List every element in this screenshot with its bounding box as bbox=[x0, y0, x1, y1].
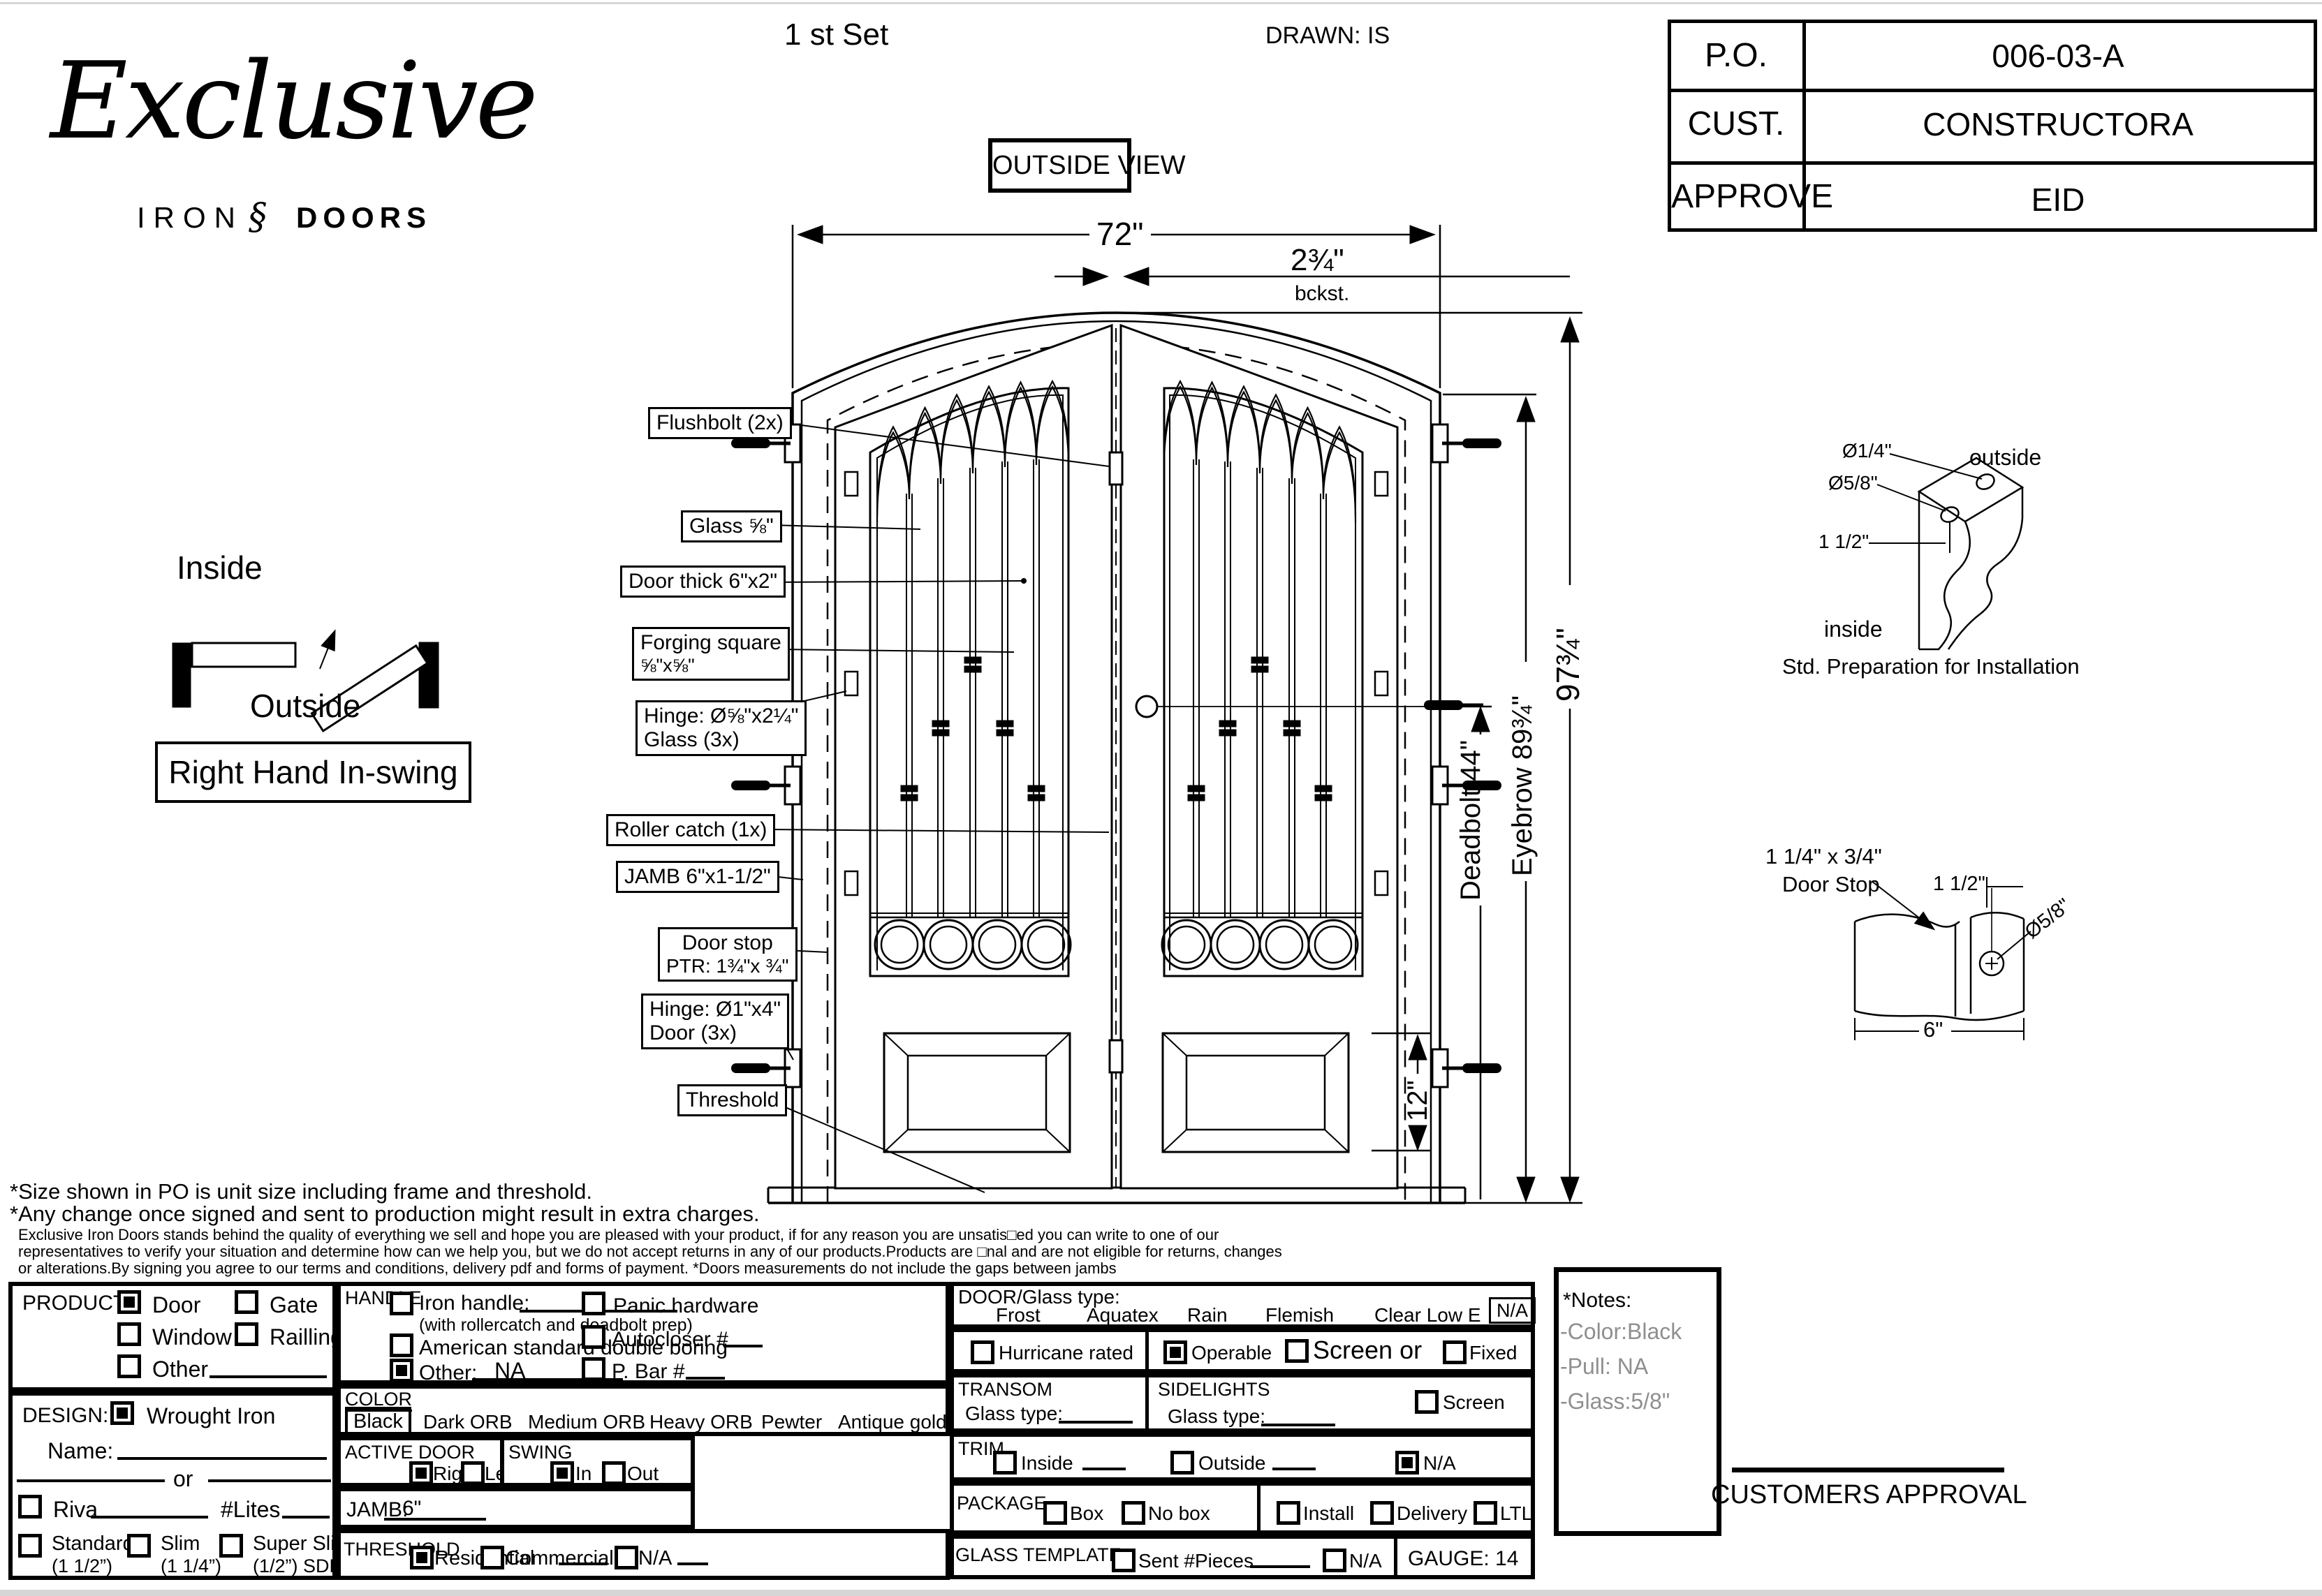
swing-title: SWING bbox=[508, 1442, 573, 1463]
doorstop-dim-bottom: 6" bbox=[1923, 1018, 1943, 1042]
checkbox-commercial[interactable] bbox=[480, 1546, 504, 1569]
screen-or-label: Screen or bbox=[1313, 1336, 1422, 1364]
section-trim: TRIM Inside Outside N/A bbox=[950, 1433, 1535, 1482]
glass-opt-frost[interactable]: Frost bbox=[996, 1304, 1041, 1326]
dim-width: 72" bbox=[1089, 216, 1151, 253]
disclaimer-line1: *Size shown in PO is unit size including… bbox=[10, 1180, 592, 1204]
design-name-field[interactable] bbox=[117, 1438, 327, 1460]
checkbox-fixed[interactable] bbox=[1443, 1340, 1467, 1364]
checkbox-left[interactable] bbox=[461, 1461, 485, 1485]
transom-glass-label: Glass type: bbox=[965, 1403, 1063, 1424]
section-jamb: JAMB: 6" bbox=[337, 1487, 695, 1529]
trim-outside-label: Outside bbox=[1198, 1452, 1266, 1474]
sent-pieces-label: Sent #Pieces bbox=[1138, 1550, 1254, 1572]
dim-height: 97¾" bbox=[1549, 628, 1587, 702]
notes-title: *Notes: bbox=[1563, 1289, 1631, 1313]
design-name-label: Name: bbox=[47, 1439, 113, 1464]
doorstop-diagram bbox=[1855, 877, 2031, 1040]
po-label: P.O. bbox=[1671, 37, 1801, 75]
section-operable: Hurricane rated Operable Screen or Fixed bbox=[950, 1328, 1535, 1373]
doorstop-title1: 1 1/4" x 3/4" bbox=[1765, 845, 1882, 869]
logo-iron: IRON bbox=[137, 201, 244, 234]
gauge-label: GAUGE: 14 bbox=[1408, 1547, 1518, 1571]
package-delivery-label: Delivery bbox=[1397, 1502, 1467, 1524]
dim-eyebrow: Eyebrow 89¾" bbox=[1507, 695, 1538, 876]
checkbox-out[interactable] bbox=[602, 1461, 626, 1485]
package-box-label: Box bbox=[1070, 1502, 1103, 1524]
dim-deadbolt: Deadbolt 44" bbox=[1455, 740, 1487, 901]
logo-ornament-icon: § bbox=[249, 197, 267, 237]
package-ltl-label: LTL bbox=[1500, 1502, 1532, 1524]
threshold-na-field[interactable] bbox=[677, 1546, 708, 1565]
checkbox-riva[interactable] bbox=[18, 1495, 42, 1519]
package-install-label: Install bbox=[1303, 1502, 1354, 1524]
checkbox-door[interactable] bbox=[117, 1290, 141, 1314]
swing-caption-box: Right Hand In-swing bbox=[155, 741, 471, 803]
section-glass-type: DOOR/Glass type: Frost Aquatex Rain Flem… bbox=[950, 1282, 1535, 1328]
product-window-label: Window bbox=[152, 1325, 232, 1350]
install-inside: inside bbox=[1824, 617, 1883, 642]
design-wrought-label: Wrought Iron bbox=[147, 1404, 275, 1429]
section-product: PRODUCT: Door Gate Window Railling Other bbox=[8, 1282, 337, 1391]
disclaimer-line3: Exclusive Iron Doors stands behind the q… bbox=[18, 1227, 1219, 1244]
cust-value: CONSTRUCTORA bbox=[1804, 107, 2312, 143]
trim-outside-field[interactable] bbox=[1272, 1451, 1316, 1470]
doorstop-dim-top: 1 1/2" bbox=[1933, 873, 1985, 895]
callout-door-thick: Door thick 6"x2" bbox=[620, 566, 786, 598]
trim-na-label: N/A bbox=[1423, 1452, 1456, 1474]
door-leaf-left bbox=[835, 325, 1112, 1188]
callout-forging: Forging square ⅝"x⅝" bbox=[632, 627, 790, 681]
package-title: PACKAGE bbox=[957, 1493, 1047, 1514]
checkbox-residential[interactable] bbox=[410, 1546, 434, 1569]
door-spec-sheet: Exclusive IRON § DOORS 1 st Set DRAWN: I… bbox=[0, 0, 2322, 1596]
callout-hinge-door: Hinge: Ø1"x4" Door (3x) bbox=[641, 993, 789, 1049]
logo-doors: DOORS bbox=[296, 201, 432, 234]
color-opt-antiquegold[interactable]: Antique gold bbox=[838, 1411, 947, 1433]
swing-inside-label: Inside bbox=[177, 550, 263, 586]
product-gate-label: Gate bbox=[270, 1293, 318, 1318]
approve-label: APPROVE bbox=[1671, 178, 1801, 216]
design-title: DESIGN: bbox=[22, 1404, 108, 1428]
handle-autocloser-label: Autocloser # bbox=[612, 1328, 728, 1352]
callout-door-stop: Door stop PTR: 1¾"x ¾" bbox=[658, 927, 798, 982]
glass-opt-aquatex[interactable]: Aquatex bbox=[1087, 1304, 1159, 1326]
checkbox-install[interactable] bbox=[1277, 1501, 1300, 1525]
callout-hinge-glass: Hinge: Ø⅝"x2¼" Glass (3x) bbox=[635, 700, 807, 756]
handle-autocloser-field[interactable] bbox=[723, 1327, 763, 1347]
checkbox-trim-na[interactable] bbox=[1395, 1451, 1419, 1475]
product-title: PRODUCT: bbox=[22, 1292, 129, 1315]
section-color: COLOR Black Dark ORB Medium ORB Heavy OR… bbox=[337, 1384, 950, 1436]
design-or-label: or bbox=[173, 1467, 193, 1492]
po-table: P.O. 006-03-A CUST. CONSTRUCTORA APPROVE… bbox=[1668, 20, 2317, 232]
section-glass-template: GLASS TEMPLATE Sent #Pieces N/A GAUGE: 1… bbox=[950, 1535, 1535, 1579]
checkbox-hurricane[interactable] bbox=[971, 1340, 994, 1364]
dim-panel: 12" bbox=[1402, 1080, 1434, 1121]
color-opt-heavyorb[interactable]: Heavy ORB bbox=[649, 1411, 753, 1433]
checkbox-railing[interactable] bbox=[235, 1322, 258, 1346]
package-nobox-label: No box bbox=[1148, 1502, 1210, 1524]
swing-out-label: Out bbox=[627, 1463, 659, 1484]
installation-diagram bbox=[1869, 454, 2022, 649]
logo-script: Exclusive bbox=[50, 42, 536, 161]
section-notes: *Notes: -Color:Black -Pull: NA -Glass:5/… bbox=[1554, 1267, 1721, 1536]
checkbox-handle-other[interactable] bbox=[390, 1359, 413, 1382]
hurricane-label: Hurricane rated bbox=[999, 1342, 1133, 1364]
product-door-label: Door bbox=[152, 1293, 200, 1318]
drawn-label: DRAWN: IS bbox=[1265, 22, 1390, 49]
checkbox-right[interactable] bbox=[409, 1461, 433, 1485]
notes-color: -Color:Black bbox=[1560, 1320, 1682, 1345]
color-opt-pewter[interactable]: Pewter bbox=[761, 1411, 822, 1433]
template-na-label: N/A bbox=[1349, 1550, 1382, 1572]
set-label: 1 st Set bbox=[784, 17, 888, 52]
checkbox-screen-or[interactable] bbox=[1285, 1339, 1309, 1363]
design-lites-label: #Lites bbox=[221, 1498, 280, 1523]
swing-caption: Right Hand In-swing bbox=[168, 754, 457, 790]
checkbox-trim-inside[interactable] bbox=[993, 1451, 1017, 1475]
callout-threshold: Threshold bbox=[677, 1084, 787, 1116]
product-railing-label: Railling bbox=[270, 1325, 343, 1350]
callout-jamb: JAMB 6"x1-1/2" bbox=[616, 861, 779, 893]
section-design: DESIGN: Wrought Iron Name: or Riva #Lite… bbox=[8, 1391, 337, 1580]
po-value: 006-03-A bbox=[1804, 38, 2312, 75]
section-handle: HANDLE Iron handle: (with rollercatch an… bbox=[337, 1282, 950, 1384]
design-riva-field[interactable] bbox=[91, 1496, 208, 1519]
install-dia2: Ø5/8" bbox=[1828, 472, 1878, 494]
checkbox-iron-handle[interactable] bbox=[390, 1292, 413, 1315]
glass-opt-clearlowe[interactable]: Clear Low E bbox=[1374, 1304, 1481, 1326]
callout-flushbolt: Flushbolt (2x) bbox=[648, 407, 792, 439]
transom-title: TRANSOM bbox=[958, 1379, 1052, 1400]
trim-inside-field[interactable] bbox=[1082, 1451, 1126, 1470]
sidelights-screen-label: Screen bbox=[1443, 1391, 1505, 1413]
color-selected[interactable]: Black bbox=[345, 1407, 411, 1436]
product-other-label: Other bbox=[152, 1357, 208, 1382]
callout-roller: Roller catch (1x) bbox=[606, 814, 775, 846]
approval-signature-line[interactable] bbox=[1732, 1468, 2004, 1472]
checkbox-delivery[interactable] bbox=[1370, 1501, 1394, 1525]
handle-other-label: Other: bbox=[419, 1361, 477, 1385]
checkbox-standard[interactable] bbox=[18, 1534, 42, 1558]
section-transom: TRANSOM Glass type: SIDELIGHTS Glass typ… bbox=[950, 1373, 1535, 1433]
checkbox-ltl[interactable] bbox=[1474, 1501, 1497, 1525]
design-standard-label: Standard(1 1/2”) bbox=[52, 1532, 134, 1578]
checkbox-panic[interactable] bbox=[582, 1292, 605, 1315]
product-other-field[interactable] bbox=[210, 1356, 327, 1378]
checkbox-wrought-iron[interactable] bbox=[110, 1401, 134, 1425]
sidelights-title: SIDELIGHTS bbox=[1158, 1379, 1270, 1400]
trim-inside-label: Inside bbox=[1021, 1452, 1073, 1474]
outside-view-box: OUTSIDE VIEW bbox=[988, 138, 1131, 193]
checkbox-sidelights-screen[interactable] bbox=[1415, 1390, 1439, 1414]
install-dia1: Ø1/4" bbox=[1842, 440, 1892, 461]
sent-pieces-field[interactable] bbox=[1250, 1549, 1310, 1568]
checkbox-trim-outside[interactable] bbox=[1170, 1451, 1194, 1475]
glass-opt-flemish[interactable]: Flemish bbox=[1265, 1304, 1334, 1326]
checkbox-sent[interactable] bbox=[1112, 1549, 1136, 1572]
checkbox-pbar[interactable] bbox=[582, 1357, 605, 1381]
checkbox-super-slim[interactable] bbox=[219, 1534, 243, 1558]
checkbox-box[interactable] bbox=[1043, 1501, 1067, 1525]
active-door-title: ACTIVE DOOR bbox=[345, 1442, 475, 1463]
disclaimer-line2: *Any change once signed and sent to prod… bbox=[10, 1202, 760, 1227]
handle-pbar-field[interactable] bbox=[686, 1359, 725, 1380]
checkbox-template-na[interactable] bbox=[1323, 1549, 1346, 1572]
glass-opt-rain[interactable]: Rain bbox=[1187, 1304, 1228, 1326]
color-opt-mediumorb[interactable]: Medium ORB bbox=[528, 1411, 645, 1433]
threshold-na-label: N/A bbox=[638, 1547, 672, 1569]
threshold-commercial-field[interactable] bbox=[559, 1546, 608, 1565]
section-package: PACKAGE Box No box Install Delivery LTL bbox=[950, 1482, 1535, 1535]
checkbox-american[interactable] bbox=[390, 1333, 413, 1357]
transom-glass-field[interactable] bbox=[1059, 1403, 1133, 1424]
color-opt-darkorb[interactable]: Dark ORB bbox=[423, 1411, 513, 1433]
checkbox-operable[interactable] bbox=[1163, 1340, 1187, 1364]
design-slim-label: Slim(1 1/4”) bbox=[161, 1532, 221, 1578]
approve-value: EID bbox=[1804, 182, 2312, 219]
handle-iron-label: Iron handle: bbox=[419, 1292, 529, 1315]
doorstop-title2: Door Stop bbox=[1782, 873, 1880, 897]
swing-outside-label: Outside bbox=[250, 688, 361, 725]
fixed-label: Fixed bbox=[1469, 1342, 1517, 1364]
install-caption: Std. Preparation for Installation bbox=[1782, 655, 2080, 679]
operable-label: Operable bbox=[1191, 1342, 1272, 1364]
install-dim: 1 1/2" bbox=[1818, 531, 1869, 552]
swing-in-label: In bbox=[575, 1463, 591, 1484]
dim-backset: 2¾" bbox=[1291, 243, 1344, 277]
install-outside: outside bbox=[1969, 445, 2041, 471]
glass-template-title: GLASS TEMPLATE bbox=[955, 1544, 1122, 1565]
handle-panic-label: Panic hardware bbox=[613, 1294, 758, 1318]
handle-pbar-label: P. Bar # bbox=[612, 1360, 685, 1384]
disclaimer-line5: or alterations.By signing you agree to o… bbox=[18, 1260, 1117, 1278]
checkbox-in[interactable] bbox=[550, 1461, 574, 1485]
glass-opt-na[interactable]: N/A bbox=[1489, 1297, 1536, 1324]
section-threshold: THRESHOLD Residential Commercial N/A bbox=[337, 1529, 950, 1580]
section-active-door: ACTIVE DOOR Right Left bbox=[337, 1436, 504, 1487]
design-lites-field[interactable] bbox=[282, 1496, 330, 1519]
notes-glass: -Glass:5/8" bbox=[1560, 1389, 1670, 1414]
cust-label: CUST. bbox=[1671, 105, 1801, 143]
callout-glass: Glass ⅝" bbox=[681, 510, 782, 542]
checkbox-gate[interactable] bbox=[235, 1290, 258, 1314]
outside-view-label: OUTSIDE VIEW bbox=[992, 151, 1186, 180]
jamb-field[interactable] bbox=[384, 1497, 486, 1521]
section-swing: SWING In Out bbox=[500, 1436, 695, 1487]
checkbox-window[interactable] bbox=[117, 1322, 141, 1346]
sidelights-glass-field[interactable] bbox=[1261, 1405, 1335, 1426]
checkbox-slim[interactable] bbox=[127, 1534, 151, 1558]
dim-backset-sub: bckst. bbox=[1295, 282, 1349, 306]
disclaimer-line4: representatives to verify your situation… bbox=[18, 1243, 1282, 1261]
notes-pull: -Pull: NA bbox=[1560, 1354, 1648, 1380]
checkbox-nobox[interactable] bbox=[1122, 1501, 1145, 1525]
approval-label: CUSTOMERS APPROVAL bbox=[1711, 1480, 2025, 1510]
checkbox-product-other[interactable] bbox=[117, 1354, 141, 1378]
checkbox-autocloser[interactable] bbox=[582, 1325, 605, 1349]
sidelights-glass-label: Glass type: bbox=[1168, 1405, 1265, 1427]
checkbox-threshold-na[interactable] bbox=[615, 1546, 638, 1569]
